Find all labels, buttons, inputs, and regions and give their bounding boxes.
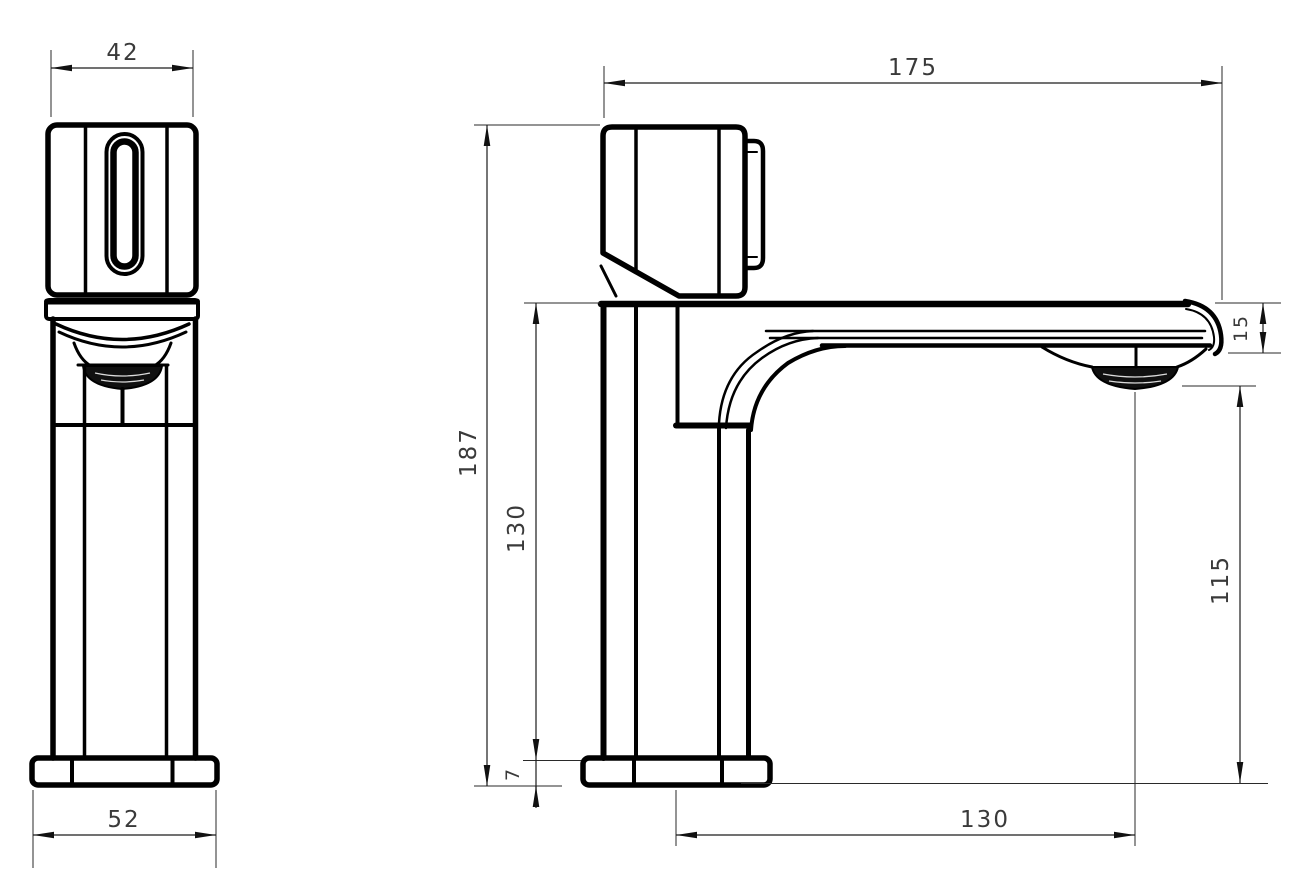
dim-text-overall-height: 187	[456, 427, 482, 477]
dim-text-base-width: 52	[107, 807, 140, 833]
faucet-drawing-canvas: 42 52	[0, 0, 1290, 875]
dim-text-overall-length: 175	[888, 55, 938, 81]
dim-text-spout-tip-depth: 15	[1230, 314, 1252, 342]
dim-text-outlet-clearance: 115	[1208, 555, 1234, 605]
dim-text-spout-height: 130	[504, 503, 530, 553]
dim-text-handle-width: 42	[106, 40, 139, 66]
dim-text-base-thickness: 7	[502, 767, 524, 781]
drawing-sheet: 42 52	[0, 0, 1290, 875]
dim-text-spout-reach: 130	[960, 807, 1010, 833]
